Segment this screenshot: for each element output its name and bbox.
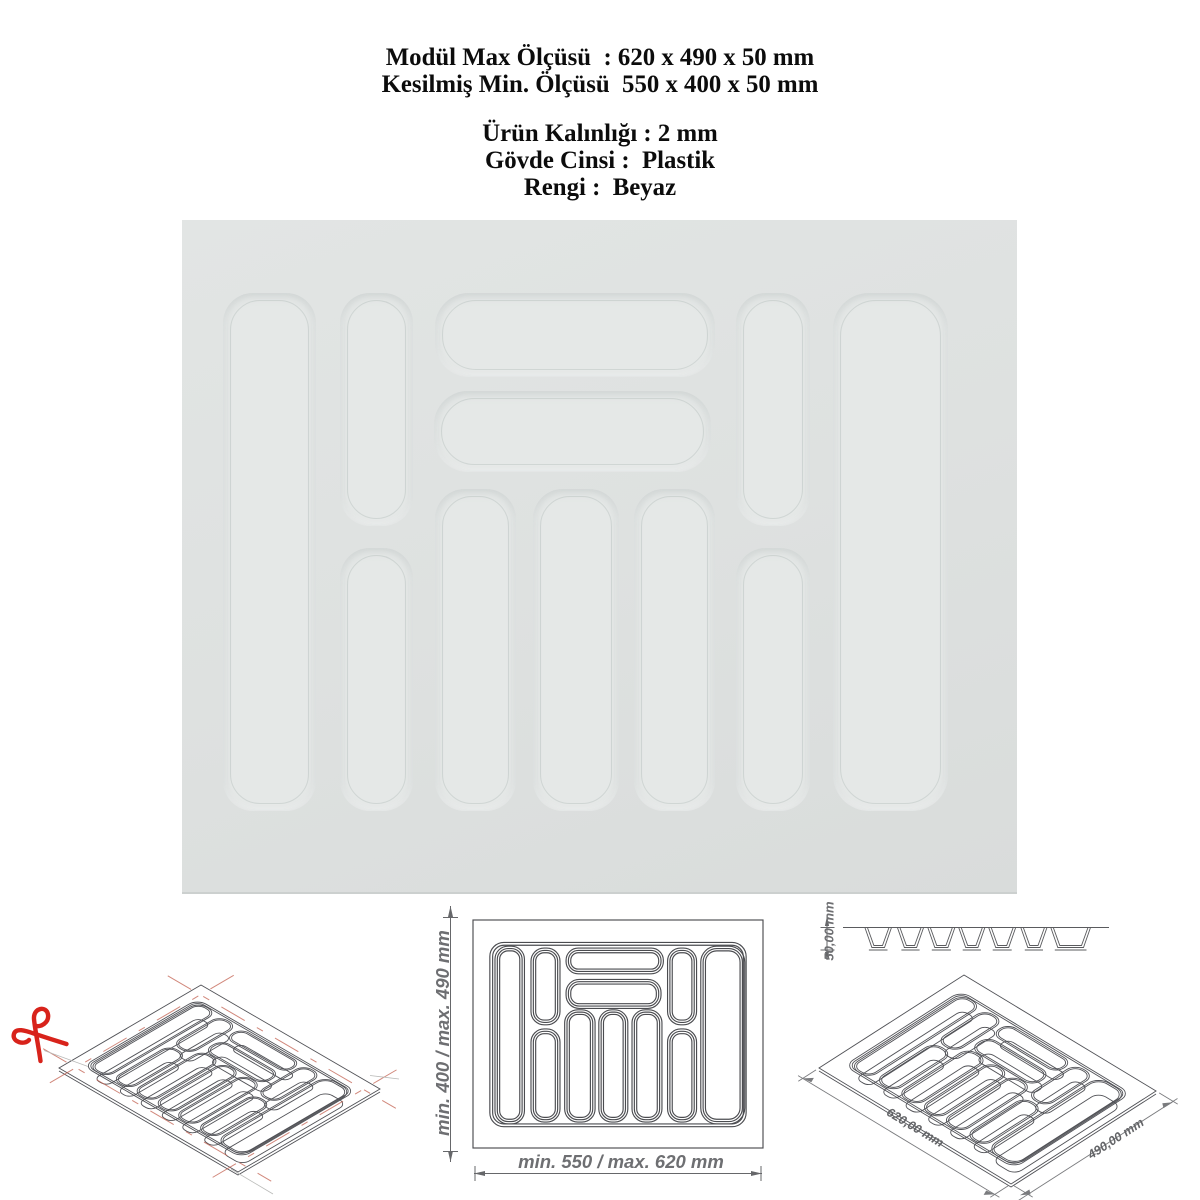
- svg-text:min. 550 / max. 620 mm: min. 550 / max. 620 mm: [518, 1151, 724, 1172]
- svg-text:min. 400 / max. 490 mm: min. 400 / max. 490 mm: [432, 930, 453, 1136]
- svg-text:490,00 mm: 490,00 mm: [1084, 1115, 1146, 1162]
- svg-text:50,00 mm: 50,00 mm: [822, 901, 837, 961]
